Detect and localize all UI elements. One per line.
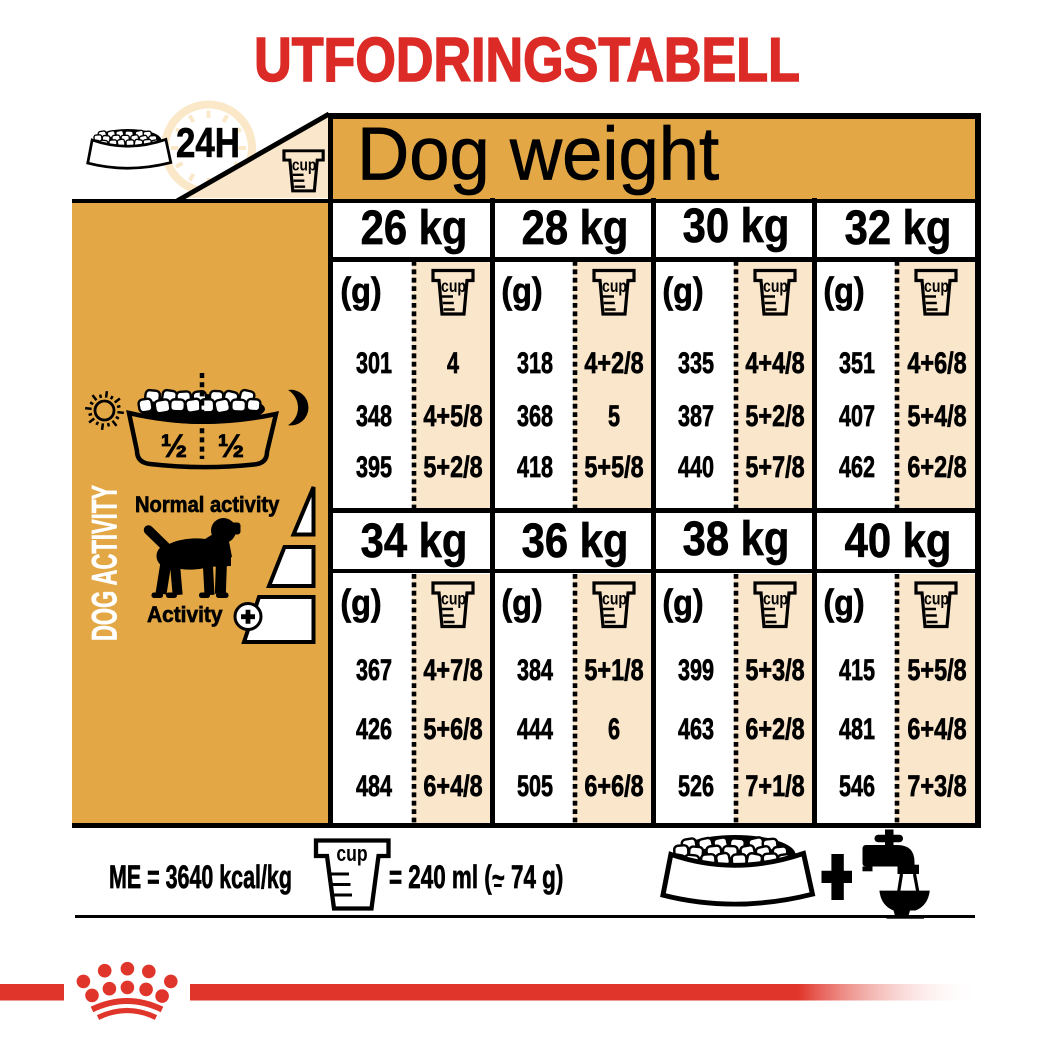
- svg-text:cup: cup: [336, 842, 367, 866]
